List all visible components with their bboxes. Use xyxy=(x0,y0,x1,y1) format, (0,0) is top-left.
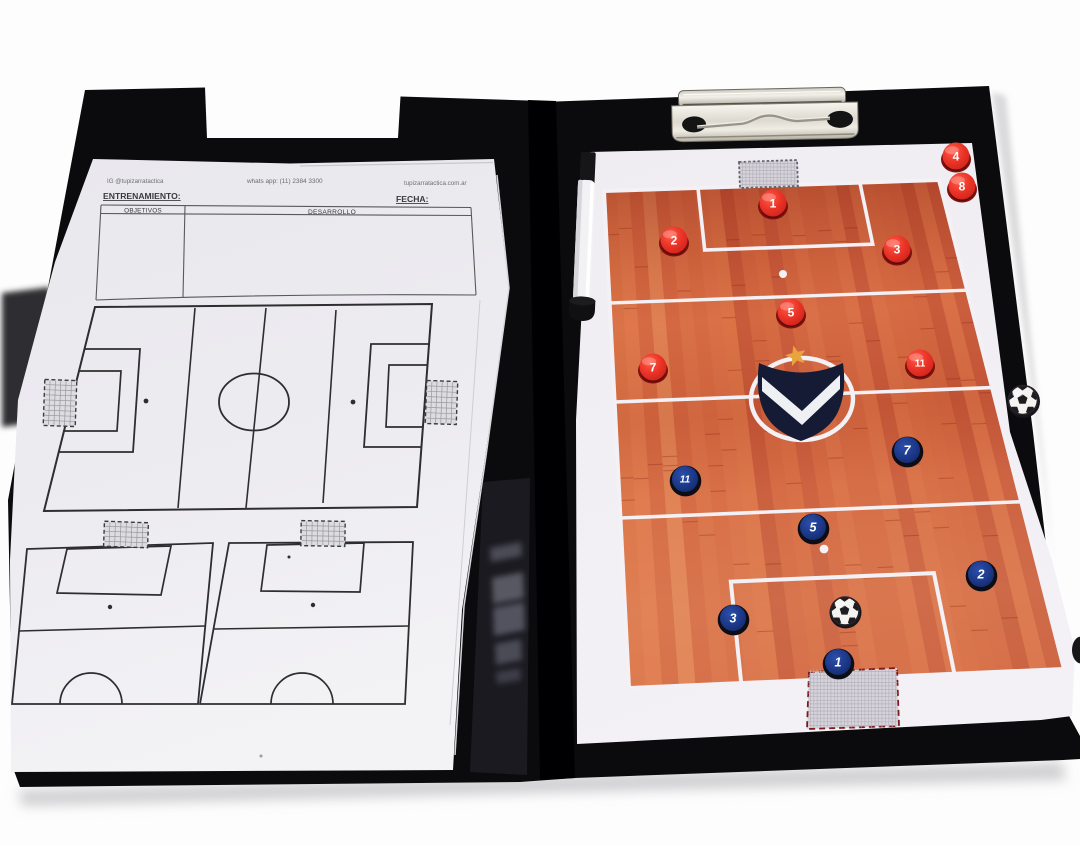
svg-text:whats app: (11) 2384 3300: whats app: (11) 2384 3300 xyxy=(246,178,323,185)
svg-text:2: 2 xyxy=(977,568,985,582)
svg-text:IG @tupizarratactica: IG @tupizarratactica xyxy=(107,178,164,185)
svg-text:2: 2 xyxy=(671,233,678,247)
svg-text:OBJETIVOS: OBJETIVOS xyxy=(124,208,162,215)
svg-text:5: 5 xyxy=(810,521,818,535)
svg-text:3: 3 xyxy=(730,612,737,626)
svg-text:11: 11 xyxy=(680,475,691,486)
svg-text:5: 5 xyxy=(788,305,795,319)
svg-text:11: 11 xyxy=(915,359,926,370)
svg-text:7: 7 xyxy=(904,444,912,458)
svg-text:DESARROLLO: DESARROLLO xyxy=(308,209,356,216)
svg-text:4: 4 xyxy=(953,149,960,163)
svg-text:ENTRENAMIENTO:: ENTRENAMIENTO: xyxy=(103,191,181,201)
svg-text:1: 1 xyxy=(770,196,777,210)
svg-text:FECHA:: FECHA: xyxy=(396,194,429,204)
svg-text:tupizarratactica.com.ar: tupizarratactica.com.ar xyxy=(404,180,467,187)
svg-text:3: 3 xyxy=(894,242,901,256)
svg-text:8: 8 xyxy=(959,179,966,193)
svg-text:1: 1 xyxy=(835,656,842,670)
svg-text:7: 7 xyxy=(650,360,657,374)
